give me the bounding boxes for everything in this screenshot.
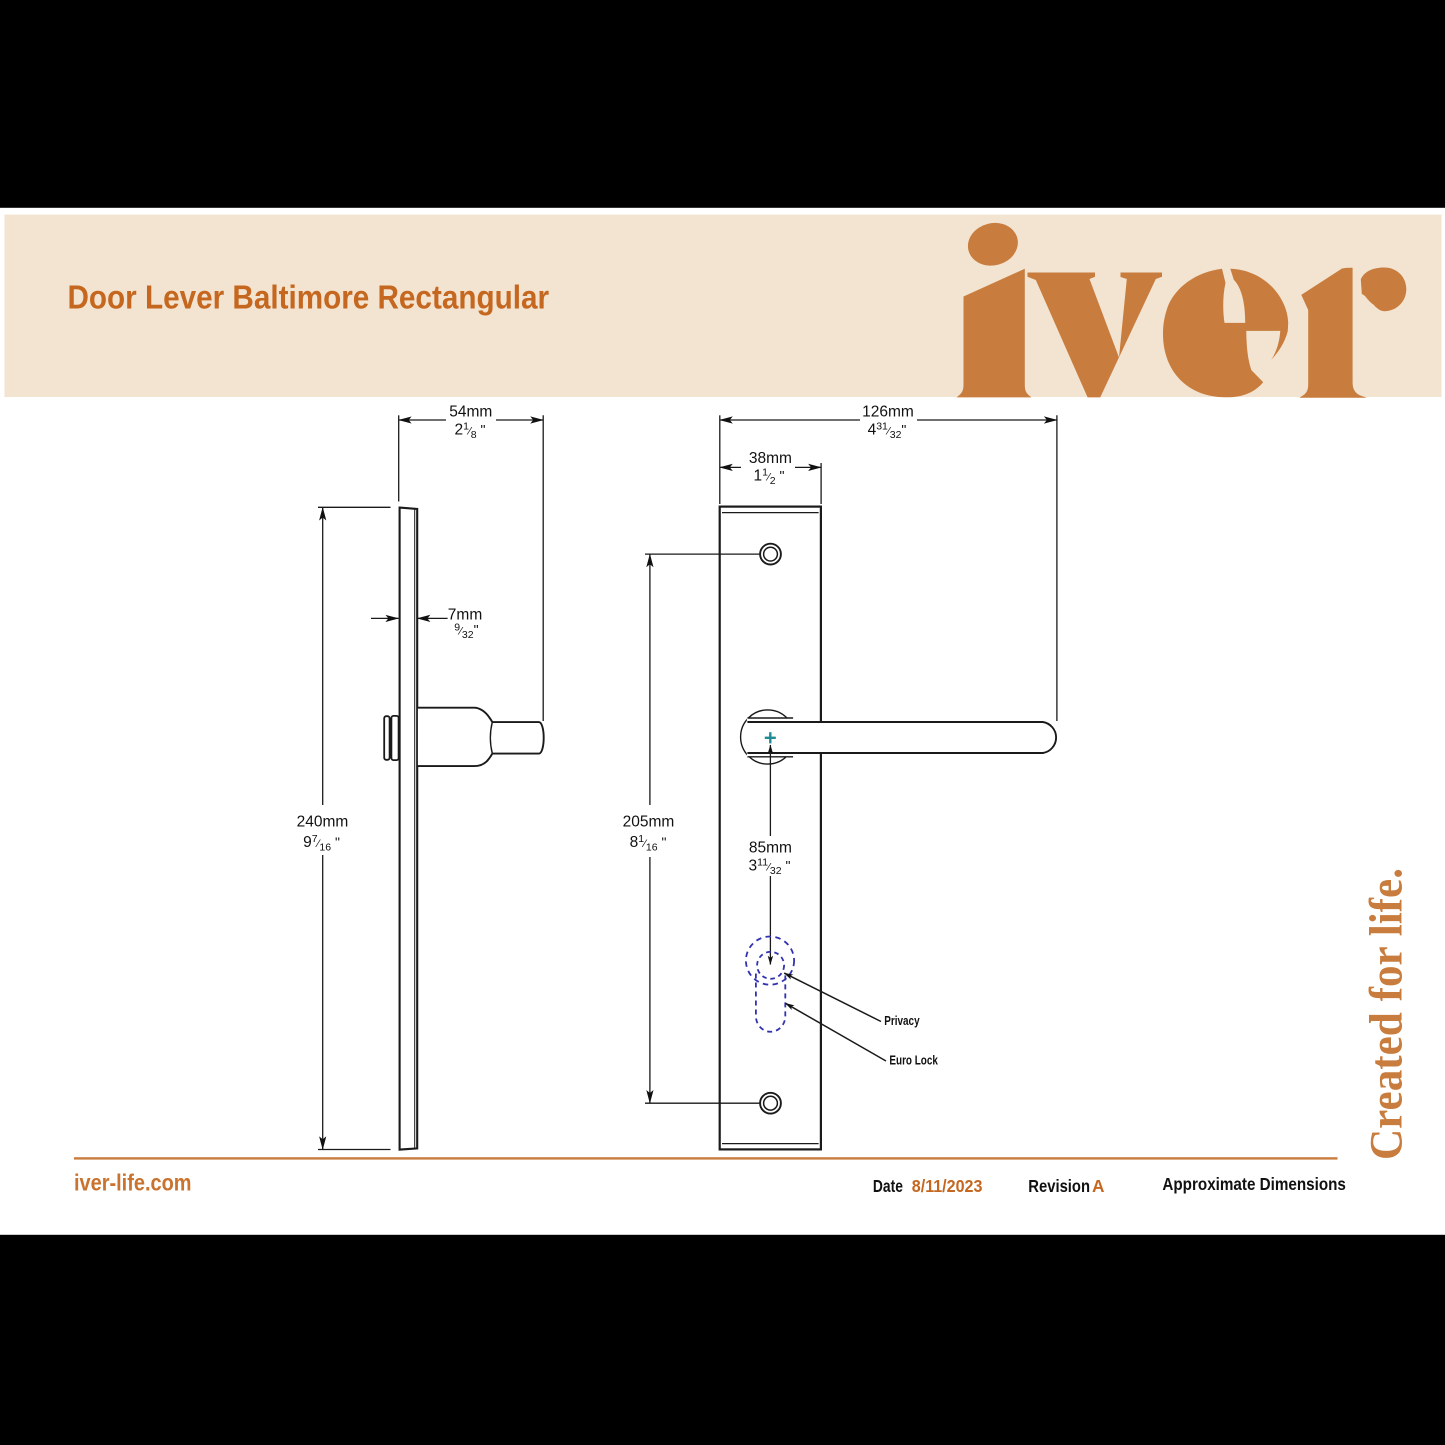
svg-text:431⁄32": 431⁄32" xyxy=(868,421,907,442)
svg-text:9⁄32": 9⁄32" xyxy=(454,622,478,642)
svg-text:97⁄16 ": 97⁄16 " xyxy=(303,833,340,854)
svg-text:Euro Lock: Euro Lock xyxy=(889,1053,938,1068)
svg-text:85mm: 85mm xyxy=(749,840,792,857)
svg-text:81⁄16 ": 81⁄16 " xyxy=(630,833,667,854)
svg-text:A: A xyxy=(1092,1176,1105,1196)
svg-text:38mm: 38mm xyxy=(749,450,792,467)
svg-text:Date: Date xyxy=(873,1176,903,1196)
svg-text:21⁄8 ": 21⁄8 " xyxy=(454,421,485,442)
svg-text:Privacy: Privacy xyxy=(884,1013,920,1028)
svg-text:240mm: 240mm xyxy=(297,814,349,831)
svg-text:Door Lever Baltimore Rectangul: Door Lever Baltimore Rectangular xyxy=(68,279,550,316)
svg-text:Created for life.: Created for life. xyxy=(1361,868,1413,1160)
svg-text:126mm: 126mm xyxy=(862,403,914,420)
svg-text:Approximate Dimensions: Approximate Dimensions xyxy=(1162,1174,1346,1194)
svg-text:Revision: Revision xyxy=(1028,1176,1090,1196)
svg-text:8/11/2023: 8/11/2023 xyxy=(912,1176,983,1196)
svg-text:205mm: 205mm xyxy=(623,814,675,831)
svg-text:54mm: 54mm xyxy=(449,403,492,420)
svg-text:11⁄2 ": 11⁄2 " xyxy=(753,467,784,488)
svg-text:iver-life.com: iver-life.com xyxy=(74,1170,192,1196)
